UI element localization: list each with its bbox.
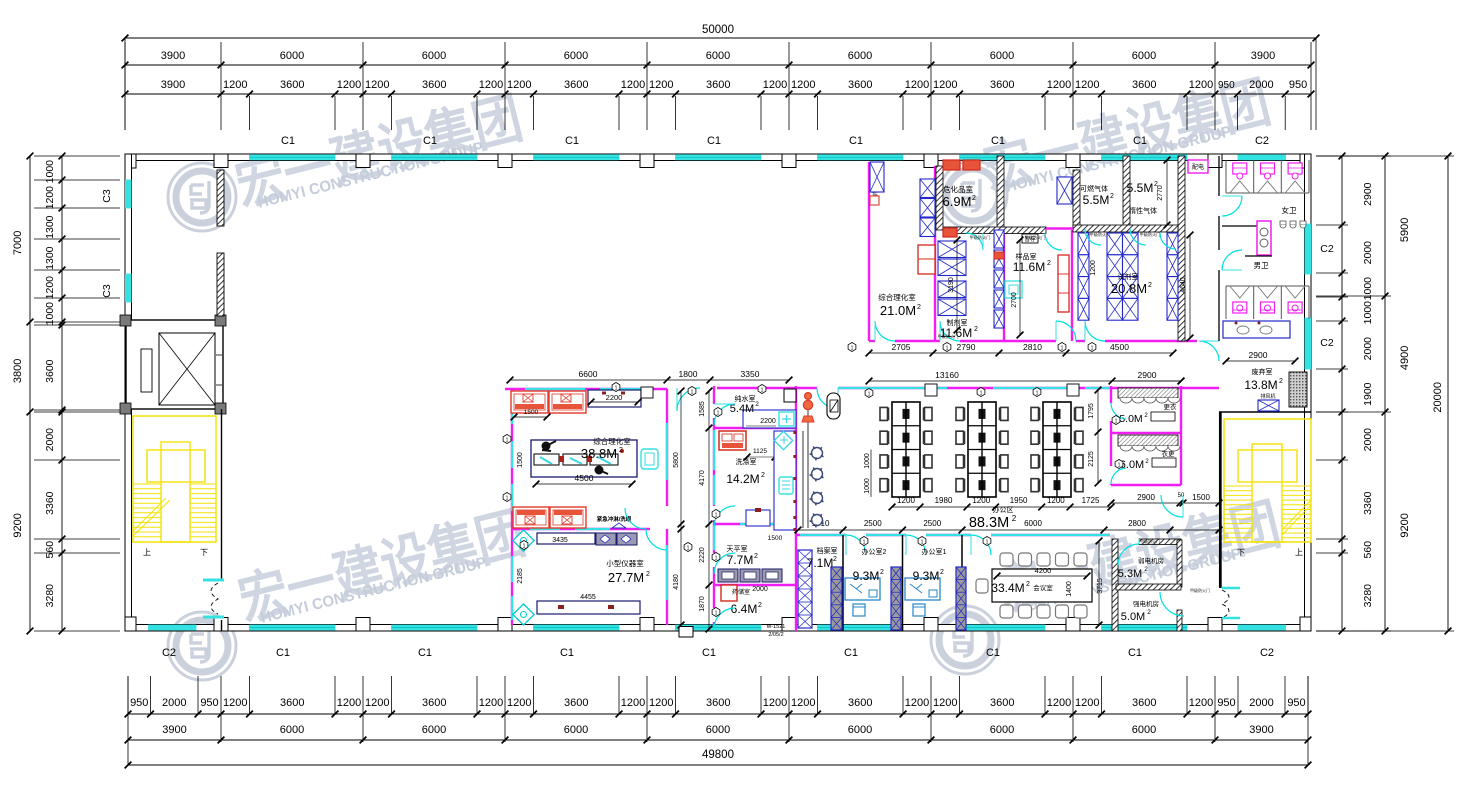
svg-text:4500: 4500 <box>1110 342 1129 352</box>
svg-text:1200: 1200 <box>44 276 56 300</box>
svg-text:6.0M: 6.0M <box>1120 459 1144 471</box>
svg-text:950: 950 <box>1289 79 1307 91</box>
svg-text:20000: 20000 <box>1432 382 1444 413</box>
svg-text:950: 950 <box>130 697 148 709</box>
svg-text:1200: 1200 <box>1189 79 1213 91</box>
svg-text:甲级防火门: 甲级防火门 <box>1025 234 1046 241</box>
svg-text:C2: C2 <box>1320 337 1334 349</box>
svg-text:3600: 3600 <box>848 79 872 91</box>
svg-text:9.3M: 9.3M <box>853 569 880 583</box>
svg-text:13.8M: 13.8M <box>1244 378 1277 392</box>
svg-text:560: 560 <box>44 541 56 559</box>
svg-text:1200: 1200 <box>44 186 56 210</box>
svg-text:5.4M: 5.4M <box>730 403 754 415</box>
svg-text:2790: 2790 <box>957 342 976 352</box>
svg-text:1: 1 <box>615 385 618 391</box>
svg-text:6000: 6000 <box>706 724 730 736</box>
svg-text:1200: 1200 <box>365 79 389 91</box>
svg-text:1200: 1200 <box>621 697 645 709</box>
svg-text:3600: 3600 <box>44 359 56 383</box>
svg-text:13160: 13160 <box>935 370 959 380</box>
svg-text:1200: 1200 <box>337 697 361 709</box>
svg-text:C1: C1 <box>986 647 1000 659</box>
svg-text:1: 1 <box>717 410 720 416</box>
svg-text:C2: C2 <box>1320 243 1334 255</box>
svg-text:4640: 4640 <box>1180 277 1187 293</box>
svg-text:1200: 1200 <box>649 79 673 91</box>
svg-text:3900: 3900 <box>161 79 185 91</box>
svg-text:2000: 2000 <box>752 586 768 593</box>
svg-text:2: 2 <box>880 569 884 576</box>
svg-text:5.5M: 5.5M <box>1083 193 1110 207</box>
svg-text:2800: 2800 <box>1128 519 1146 528</box>
svg-text:3900: 3900 <box>161 50 185 62</box>
svg-text:1795: 1795 <box>1088 403 1095 419</box>
svg-text:1: 1 <box>1061 345 1064 351</box>
svg-text:1: 1 <box>506 437 509 443</box>
svg-text:1400: 1400 <box>1066 581 1073 597</box>
svg-text:1800: 1800 <box>679 369 698 379</box>
svg-text:上: 上 <box>1295 548 1303 557</box>
svg-text:2200: 2200 <box>760 418 776 425</box>
svg-text:C3: C3 <box>101 284 113 298</box>
svg-text:1000: 1000 <box>864 453 871 469</box>
svg-text:3600: 3600 <box>422 697 446 709</box>
svg-text:甲级防火门: 甲级防火门 <box>1190 587 1210 593</box>
svg-text:9200: 9200 <box>1399 513 1411 537</box>
svg-text:11.6M: 11.6M <box>1013 260 1045 274</box>
svg-text:会议室: 会议室 <box>1033 583 1053 592</box>
svg-text:2810: 2810 <box>1023 342 1042 352</box>
svg-text:3600: 3600 <box>848 697 872 709</box>
svg-text:2000: 2000 <box>1249 697 1273 709</box>
svg-text:弱电机房: 弱电机房 <box>1138 556 1164 565</box>
svg-text:6000: 6000 <box>990 50 1014 62</box>
svg-text:下: 下 <box>1237 548 1245 557</box>
svg-text:6000: 6000 <box>706 50 730 62</box>
svg-text:1000: 1000 <box>864 478 871 494</box>
svg-text:1585: 1585 <box>699 401 706 417</box>
svg-text:C1: C1 <box>1133 135 1147 147</box>
svg-text:3900: 3900 <box>1251 50 1275 62</box>
svg-text:2: 2 <box>1026 581 1030 588</box>
svg-text:衣更: 衣更 <box>1162 449 1176 458</box>
svg-text:综合理化室: 综合理化室 <box>593 436 631 446</box>
svg-text:4455: 4455 <box>580 594 596 601</box>
svg-text:2: 2 <box>1110 193 1114 200</box>
svg-text:6000: 6000 <box>1132 724 1156 736</box>
svg-text:6000: 6000 <box>564 50 588 62</box>
svg-text:3350: 3350 <box>741 369 760 379</box>
svg-text:C1: C1 <box>707 135 721 147</box>
svg-text:49800: 49800 <box>702 749 734 761</box>
svg-text:1200: 1200 <box>763 79 787 91</box>
svg-text:洗涤室: 洗涤室 <box>736 457 757 466</box>
svg-text:女卫: 女卫 <box>1282 205 1298 215</box>
svg-text:1: 1 <box>921 539 924 545</box>
svg-text:甲级防火门: 甲级防火门 <box>970 234 991 241</box>
svg-text:1: 1 <box>946 345 949 351</box>
svg-text:3600: 3600 <box>280 79 304 91</box>
svg-text:1300: 1300 <box>44 246 56 270</box>
svg-text:配电: 配电 <box>1192 163 1204 171</box>
svg-text:1980: 1980 <box>935 496 953 505</box>
svg-text:1500: 1500 <box>1192 493 1210 502</box>
svg-text:4200: 4200 <box>1035 566 1052 575</box>
svg-text:1200: 1200 <box>1090 260 1097 276</box>
svg-text:2000: 2000 <box>1362 241 1374 265</box>
svg-text:2: 2 <box>754 553 758 560</box>
svg-text:50000: 50000 <box>702 24 734 36</box>
svg-text:7.7M: 7.7M <box>727 553 754 567</box>
svg-text:3600: 3600 <box>706 79 730 91</box>
svg-text:2: 2 <box>1147 609 1151 616</box>
svg-text:6000: 6000 <box>564 724 588 736</box>
svg-text:2500: 2500 <box>923 519 941 528</box>
svg-text:4500: 4500 <box>575 473 594 483</box>
svg-text:3600: 3600 <box>1132 79 1156 91</box>
svg-text:1200: 1200 <box>621 79 645 91</box>
svg-text:甲级防火门: 甲级防火门 <box>1140 538 1160 544</box>
svg-text:更衣: 更衣 <box>1164 402 1178 411</box>
svg-text:试剂室: 试剂室 <box>1118 272 1139 281</box>
svg-text:6000: 6000 <box>848 50 872 62</box>
svg-text:1: 1 <box>1091 345 1094 351</box>
svg-text:1200: 1200 <box>1047 697 1071 709</box>
svg-text:C2: C2 <box>1260 647 1274 659</box>
svg-text:1200: 1200 <box>791 79 815 91</box>
svg-text:5.3M: 5.3M <box>1118 568 1142 580</box>
svg-text:2: 2 <box>833 556 837 563</box>
svg-text:1: 1 <box>851 345 854 351</box>
svg-text:3600: 3600 <box>564 697 588 709</box>
svg-text:1: 1 <box>863 539 866 545</box>
svg-text:2: 2 <box>917 304 921 311</box>
svg-text:88.3M: 88.3M <box>969 515 1009 531</box>
svg-text:1200: 1200 <box>791 697 815 709</box>
svg-text:1: 1 <box>506 495 509 501</box>
svg-text:2: 2 <box>1144 566 1148 573</box>
svg-text:2: 2 <box>1047 260 1051 267</box>
svg-text:档案室: 档案室 <box>817 546 838 555</box>
svg-text:1950: 1950 <box>1010 496 1028 505</box>
svg-text:3360: 3360 <box>44 491 56 515</box>
svg-text:C2: C2 <box>1255 135 1269 147</box>
svg-text:1200: 1200 <box>507 697 531 709</box>
svg-text:甲级防火门: 甲级防火门 <box>938 333 959 340</box>
svg-text:6000: 6000 <box>280 724 304 736</box>
svg-text:C3: C3 <box>101 189 113 203</box>
svg-text:1200: 1200 <box>933 79 957 91</box>
svg-text:6000: 6000 <box>280 50 304 62</box>
svg-text:C1: C1 <box>560 647 574 659</box>
svg-text:3600: 3600 <box>990 79 1014 91</box>
svg-text:1: 1 <box>715 555 718 561</box>
svg-text:上: 上 <box>143 548 151 557</box>
svg-text:1: 1 <box>986 539 989 545</box>
svg-text:1870: 1870 <box>699 596 706 612</box>
svg-text:C1: C1 <box>844 647 858 659</box>
svg-text:1725: 1725 <box>1082 496 1100 505</box>
svg-text:1200: 1200 <box>479 79 503 91</box>
svg-text:3280: 3280 <box>1362 584 1374 608</box>
svg-text:9.3M: 9.3M <box>913 569 940 583</box>
svg-text:男卫: 男卫 <box>1254 261 1270 270</box>
svg-text:1: 1 <box>1115 418 1118 424</box>
svg-text:3280: 3280 <box>44 584 56 608</box>
svg-text:2900: 2900 <box>1362 182 1374 206</box>
svg-text:3900: 3900 <box>1249 724 1273 736</box>
svg-text:1200: 1200 <box>337 79 361 91</box>
svg-text:560: 560 <box>1362 541 1374 559</box>
svg-text:1500: 1500 <box>517 452 524 468</box>
svg-text:可燃气体: 可燃气体 <box>1080 184 1108 193</box>
svg-text:1: 1 <box>687 545 690 551</box>
svg-text:1: 1 <box>980 390 983 396</box>
svg-text:C1: C1 <box>991 135 1005 147</box>
svg-text:6000: 6000 <box>422 50 446 62</box>
svg-text:2: 2 <box>1148 282 1152 289</box>
svg-text:C1: C1 <box>565 135 579 147</box>
svg-text:3190: 3190 <box>948 277 955 293</box>
svg-text:1200: 1200 <box>763 697 787 709</box>
svg-text:2: 2 <box>940 569 944 576</box>
svg-text:2: 2 <box>758 602 762 609</box>
svg-text:950: 950 <box>1217 697 1235 709</box>
svg-text:废弃室: 废弃室 <box>1252 367 1273 376</box>
svg-text:2000: 2000 <box>1362 337 1374 361</box>
svg-text:20.8M: 20.8M <box>1111 281 1147 296</box>
svg-text:5.0M: 5.0M <box>1121 611 1145 623</box>
svg-text:4170: 4170 <box>699 470 706 486</box>
svg-text:1200: 1200 <box>479 697 503 709</box>
svg-text:3800: 3800 <box>12 359 24 383</box>
svg-text:1200: 1200 <box>905 79 929 91</box>
svg-text:2: 2 <box>1012 514 1017 523</box>
svg-text:下: 下 <box>200 548 208 557</box>
svg-text:C1: C1 <box>1128 647 1142 659</box>
svg-text:2: 2 <box>646 571 650 578</box>
svg-text:2900: 2900 <box>1249 350 1268 360</box>
svg-text:1200: 1200 <box>365 697 389 709</box>
svg-text:1200: 1200 <box>507 79 531 91</box>
svg-text:2: 2 <box>761 472 765 479</box>
svg-text:7.1M: 7.1M <box>807 556 834 570</box>
svg-text:1: 1 <box>761 387 764 393</box>
svg-text:2: 2 <box>755 401 759 408</box>
svg-text:1: 1 <box>691 389 694 395</box>
svg-text:3600: 3600 <box>1132 697 1156 709</box>
svg-text:1: 1 <box>1118 462 1121 468</box>
svg-text:1200: 1200 <box>223 79 247 91</box>
svg-text:950: 950 <box>1287 697 1305 709</box>
svg-text:2125: 2125 <box>1088 451 1095 467</box>
svg-text:2: 2 <box>974 326 978 333</box>
svg-text:纯水室: 纯水室 <box>735 394 756 403</box>
svg-text:2700: 2700 <box>1011 292 1018 308</box>
svg-text:2000: 2000 <box>44 428 56 452</box>
svg-text:1: 1 <box>715 610 718 616</box>
svg-text:3600: 3600 <box>280 697 304 709</box>
svg-text:33.4M: 33.4M <box>991 581 1024 595</box>
svg-text:6600: 6600 <box>579 369 598 379</box>
svg-text:1300: 1300 <box>44 215 56 239</box>
svg-text:1200: 1200 <box>1075 697 1099 709</box>
svg-text:2: 2 <box>619 447 623 454</box>
svg-text:5.5M: 5.5M <box>1127 181 1154 195</box>
svg-text:6000: 6000 <box>1132 50 1156 62</box>
svg-text:强电机房: 强电机房 <box>1133 599 1159 608</box>
svg-text:5900: 5900 <box>1399 218 1411 242</box>
svg-text:1: 1 <box>1036 390 1039 396</box>
svg-text:1200: 1200 <box>649 697 673 709</box>
svg-text:14.2M: 14.2M <box>726 472 759 486</box>
svg-text:办公区: 办公区 <box>993 505 1014 514</box>
svg-text:950: 950 <box>1218 80 1235 91</box>
svg-text:6.4M: 6.4M <box>731 602 758 616</box>
svg-text:3435: 3435 <box>552 537 568 544</box>
svg-text:3360: 3360 <box>1362 491 1374 515</box>
svg-text:2185: 2185 <box>517 568 524 584</box>
svg-text:小型仪器室: 小型仪器室 <box>606 558 644 568</box>
svg-text:6000: 6000 <box>848 724 872 736</box>
svg-text:1200: 1200 <box>1075 79 1099 91</box>
svg-text:1200: 1200 <box>933 697 957 709</box>
svg-text:3600: 3600 <box>706 697 730 709</box>
svg-text:2: 2 <box>1279 378 1283 385</box>
svg-text:4900: 4900 <box>1399 346 1411 370</box>
svg-text:办公室1: 办公室1 <box>922 547 947 556</box>
svg-text:3600: 3600 <box>990 697 1014 709</box>
svg-text:1200: 1200 <box>905 697 929 709</box>
svg-text:甲级防火门: 甲级防火门 <box>1090 231 1111 238</box>
svg-text:7000: 7000 <box>12 231 24 255</box>
svg-text:M-1521: M-1521 <box>767 624 786 630</box>
svg-text:危化品室: 危化品室 <box>943 184 973 194</box>
svg-text:50: 50 <box>1178 493 1185 499</box>
svg-text:1200: 1200 <box>223 697 247 709</box>
svg-text:27.7M: 27.7M <box>608 570 644 585</box>
svg-text:2500: 2500 <box>864 519 882 528</box>
svg-text:21.0M: 21.0M <box>880 303 916 318</box>
svg-text:C1: C1 <box>276 647 290 659</box>
svg-text:1: 1 <box>715 512 718 518</box>
svg-text:2/05/2: 2/05/2 <box>768 632 783 638</box>
svg-text:1200: 1200 <box>972 496 990 505</box>
svg-text:C1: C1 <box>281 135 295 147</box>
svg-text:38.8M: 38.8M <box>581 446 617 461</box>
svg-text:1500: 1500 <box>524 409 539 416</box>
svg-text:办公室2: 办公室2 <box>862 547 887 556</box>
svg-text:1200: 1200 <box>897 496 915 505</box>
svg-text:1125: 1125 <box>753 448 767 455</box>
svg-text:9200: 9200 <box>12 513 24 537</box>
svg-text:3715: 3715 <box>1097 578 1104 594</box>
svg-text:6000: 6000 <box>422 724 446 736</box>
svg-text:甲级防火门: 甲级防火门 <box>1140 231 1161 238</box>
svg-text:排风机: 排风机 <box>1260 393 1275 400</box>
svg-text:1500: 1500 <box>768 535 783 542</box>
svg-text:4180: 4180 <box>673 574 680 590</box>
svg-text:1000: 1000 <box>1362 277 1374 301</box>
svg-text:C2: C2 <box>162 647 176 659</box>
svg-text:1: 1 <box>523 543 526 549</box>
svg-text:2000: 2000 <box>162 697 186 709</box>
svg-text:6000: 6000 <box>1024 519 1042 528</box>
svg-text:1200: 1200 <box>1047 79 1071 91</box>
svg-text:C1: C1 <box>423 135 437 147</box>
svg-text:2900: 2900 <box>1138 370 1157 380</box>
svg-text:3600: 3600 <box>564 79 588 91</box>
svg-text:2200: 2200 <box>606 393 623 402</box>
svg-text:1200: 1200 <box>1047 496 1065 505</box>
svg-text:2705: 2705 <box>892 342 911 352</box>
svg-text:1: 1 <box>868 391 871 397</box>
svg-text:2900: 2900 <box>1137 493 1155 502</box>
svg-text:1900: 1900 <box>1362 382 1374 406</box>
svg-text:综合理化室: 综合理化室 <box>878 292 916 302</box>
svg-text:3900: 3900 <box>162 724 186 736</box>
svg-text:6.9M: 6.9M <box>943 194 972 209</box>
svg-text:3600: 3600 <box>422 79 446 91</box>
svg-text:天平室: 天平室 <box>727 544 748 553</box>
svg-text:惰性气体: 惰性气体 <box>1129 206 1157 215</box>
svg-text:C1: C1 <box>702 647 716 659</box>
svg-text:5800: 5800 <box>673 452 680 468</box>
svg-text:C1: C1 <box>849 135 863 147</box>
svg-text:药储室: 药储室 <box>732 588 750 596</box>
svg-text:2000: 2000 <box>1362 428 1374 452</box>
svg-text:2220: 2220 <box>699 547 706 563</box>
svg-text:C1: C1 <box>418 647 432 659</box>
svg-text:2: 2 <box>972 195 976 202</box>
svg-text:950: 950 <box>200 697 218 709</box>
svg-text:1000: 1000 <box>1362 301 1374 325</box>
svg-text:2770: 2770 <box>1157 185 1164 201</box>
svg-text:2000: 2000 <box>1249 79 1273 91</box>
svg-text:1200: 1200 <box>1189 697 1213 709</box>
svg-text:6000: 6000 <box>990 724 1014 736</box>
